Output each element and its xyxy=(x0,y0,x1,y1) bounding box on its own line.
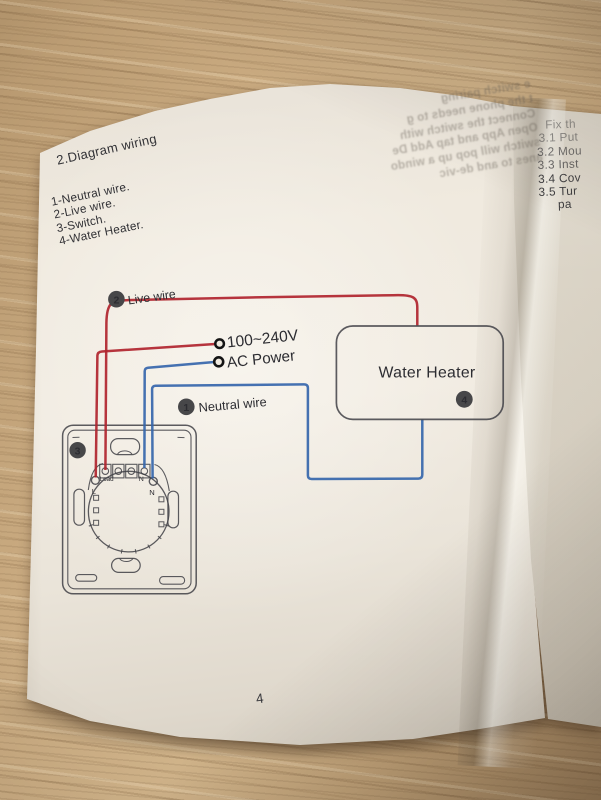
switch-side-clips xyxy=(94,495,164,527)
live-wire-label: Live wire xyxy=(127,287,177,308)
ac-power-label: AC Power xyxy=(226,347,296,371)
water-heater-box: Water Heater 4 xyxy=(336,326,503,419)
manual-photo: e switch pairing t the phone needs to g … xyxy=(0,0,601,800)
svg-text:3: 3 xyxy=(75,445,81,457)
switch-body-ticks xyxy=(89,525,169,554)
switch-terminal-l xyxy=(91,476,99,484)
switch-label-n-top: N xyxy=(139,476,144,483)
switch-inner-plate xyxy=(68,430,191,589)
right-page-text: Fix th 3.1 Put 3.2 Mou 3.3 Inst 3.4 Cov … xyxy=(536,117,584,212)
switch-bottom-slot-right xyxy=(160,577,185,585)
switch-round-body xyxy=(88,471,169,552)
switch-top-tab-notch xyxy=(118,451,133,454)
svg-text:2: 2 xyxy=(113,295,119,307)
wiring-diagram: Load N L N xyxy=(0,0,601,800)
ac-terminal-neutral-icon xyxy=(214,357,223,366)
switch-left-slot xyxy=(74,489,85,525)
ac-terminal-live-icon xyxy=(215,339,224,348)
neutral-wire-label: Neutral wire xyxy=(198,394,267,415)
water-heater-label: Water Heater xyxy=(379,365,476,382)
neutral-wire-supply-path xyxy=(144,362,214,468)
page-number: 4 xyxy=(255,691,265,707)
switch-top-tab xyxy=(111,439,140,455)
switch-bottom-slot-left xyxy=(76,575,97,582)
svg-text:4: 4 xyxy=(461,395,467,407)
svg-text:1: 1 xyxy=(183,402,189,414)
right-page-line: 3.3 Inst xyxy=(537,158,582,173)
neutral-wire-return-path xyxy=(152,384,422,479)
right-page-line: pa xyxy=(539,198,584,213)
switch-bottom-tab xyxy=(112,558,141,572)
switch-label-n-side: N xyxy=(149,488,154,497)
